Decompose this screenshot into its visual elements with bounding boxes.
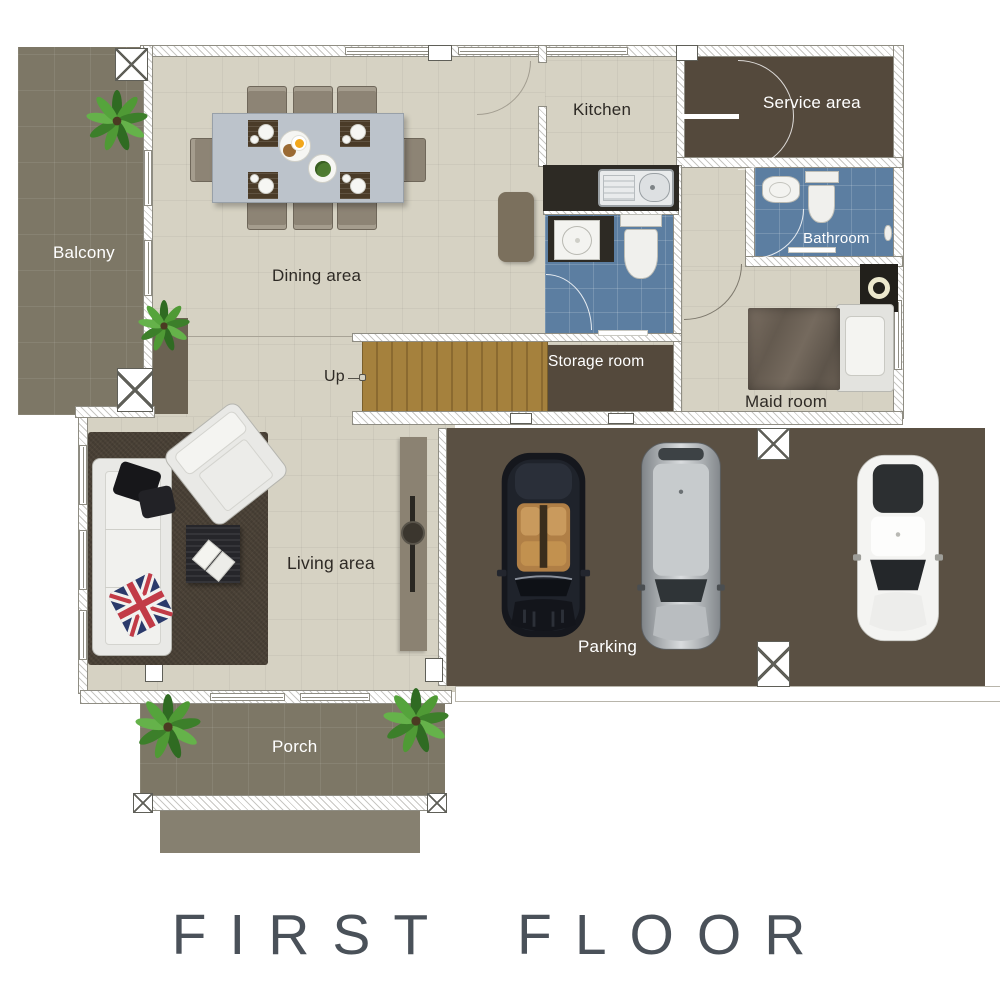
sofa-cushion-line-1 — [105, 529, 161, 530]
kitchen-label: Kitchen — [573, 100, 631, 120]
window-porch-1 — [210, 693, 285, 701]
porch-plant-right — [383, 688, 449, 754]
dining-chair-top-1 — [247, 86, 287, 116]
column-parking-bottom — [757, 641, 790, 687]
wall-parking-left — [438, 428, 447, 686]
wall-service-bottom — [676, 157, 903, 168]
sedan-car — [853, 449, 943, 647]
wall-kitchen-service — [676, 45, 685, 167]
up-leader-marker — [359, 374, 366, 381]
plate-small — [250, 174, 259, 183]
column-top-2 — [676, 45, 698, 61]
stair-edge-line — [188, 336, 362, 337]
wall-kitchen-stub — [538, 45, 547, 63]
living-area-label: Living area — [287, 553, 375, 574]
placemat-4 — [340, 172, 370, 199]
plan-title: FIRST FLOOR — [0, 902, 1000, 968]
column-balcony-bottom — [117, 368, 153, 412]
washbasin-bowl — [769, 182, 791, 198]
dining-chair-bottom-1 — [247, 200, 287, 230]
egg-yolk — [295, 139, 304, 148]
bathroom-washbasin — [762, 176, 800, 203]
dining-chair-bottom-3 — [337, 200, 377, 230]
plate-small — [342, 174, 351, 183]
serving-plate-egg — [279, 130, 311, 162]
serving-plate-salad — [308, 154, 337, 183]
toilet-bowl — [808, 185, 835, 223]
sideboard-cabinet — [498, 192, 534, 262]
window-balcony-1 — [144, 150, 152, 206]
salad — [315, 161, 331, 177]
balcony-label: Balcony — [53, 243, 115, 263]
plate-large — [350, 178, 366, 194]
plate-small — [250, 135, 259, 144]
bath-towel-bar — [788, 247, 836, 253]
window-balcony-2 — [144, 240, 152, 296]
plate-large — [258, 124, 274, 140]
dining-chair-top-2 — [293, 86, 333, 116]
guest-basin-drain — [575, 238, 580, 243]
suv-car — [637, 441, 725, 651]
maid-room-label: Maid room — [745, 392, 827, 412]
wall-porch-bottom — [140, 795, 445, 811]
dining-area-label: Dining area — [272, 266, 361, 286]
parking-apron-outline — [455, 686, 1000, 702]
column-top-1 — [428, 45, 452, 61]
column-garage-1 — [510, 413, 532, 424]
window-living-2 — [79, 530, 87, 590]
window-porch-2 — [300, 693, 370, 701]
balcony-plant — [86, 90, 148, 152]
window-living-1 — [79, 445, 87, 505]
up-label: Up — [324, 368, 345, 386]
guest-toilet-bowl — [624, 229, 658, 279]
porch-label: Porch — [272, 737, 317, 757]
dining-table — [212, 113, 404, 203]
parking-label: Parking — [578, 637, 637, 657]
window-living-3 — [79, 610, 87, 660]
porch-step — [160, 811, 420, 853]
column-porch-left — [133, 793, 153, 813]
tv-speaker — [401, 521, 425, 545]
staircase — [362, 340, 548, 415]
column-living-2 — [425, 658, 443, 682]
plate-large — [350, 124, 366, 140]
dining-chair-bottom-2 — [293, 200, 333, 230]
washing-machine-door — [868, 277, 890, 299]
dining-chair-top-3 — [337, 86, 377, 116]
door-line-service — [681, 114, 739, 119]
kitchen-sink — [598, 169, 674, 207]
bed-pillow — [845, 316, 885, 376]
service-area-label: Service area — [763, 93, 861, 113]
guest-washbasin — [554, 220, 600, 260]
window-top-1 — [345, 47, 431, 55]
bed-blanket — [748, 308, 840, 390]
placemat-3 — [248, 172, 278, 199]
bathroom-label: Bathroom — [803, 230, 870, 247]
porch-plant-left — [135, 694, 201, 760]
corridor-floor — [682, 165, 745, 267]
column-garage-2 — [608, 413, 634, 424]
plate-small — [342, 135, 351, 144]
plate-large — [258, 178, 274, 194]
floor-plan: Balcony Dining area Kitchen Service area… — [0, 0, 1000, 1000]
column-parking-top — [757, 428, 790, 460]
storage-room-label: Storage room — [548, 353, 644, 371]
column-balcony-top — [115, 48, 148, 81]
guest-toilet-tank — [620, 214, 662, 227]
column-porch-right — [427, 793, 447, 813]
guest-towel-bar — [598, 330, 648, 336]
toilet-tank — [805, 171, 839, 183]
placemat-1 — [248, 120, 278, 147]
wall-kitchen-dining — [538, 106, 547, 167]
planter-plant — [138, 300, 190, 352]
bath-accessory — [884, 225, 892, 241]
placemat-2 — [340, 120, 370, 147]
sink-drainboard — [603, 175, 635, 201]
convertible-car — [496, 450, 591, 640]
sink-faucet — [650, 185, 655, 190]
